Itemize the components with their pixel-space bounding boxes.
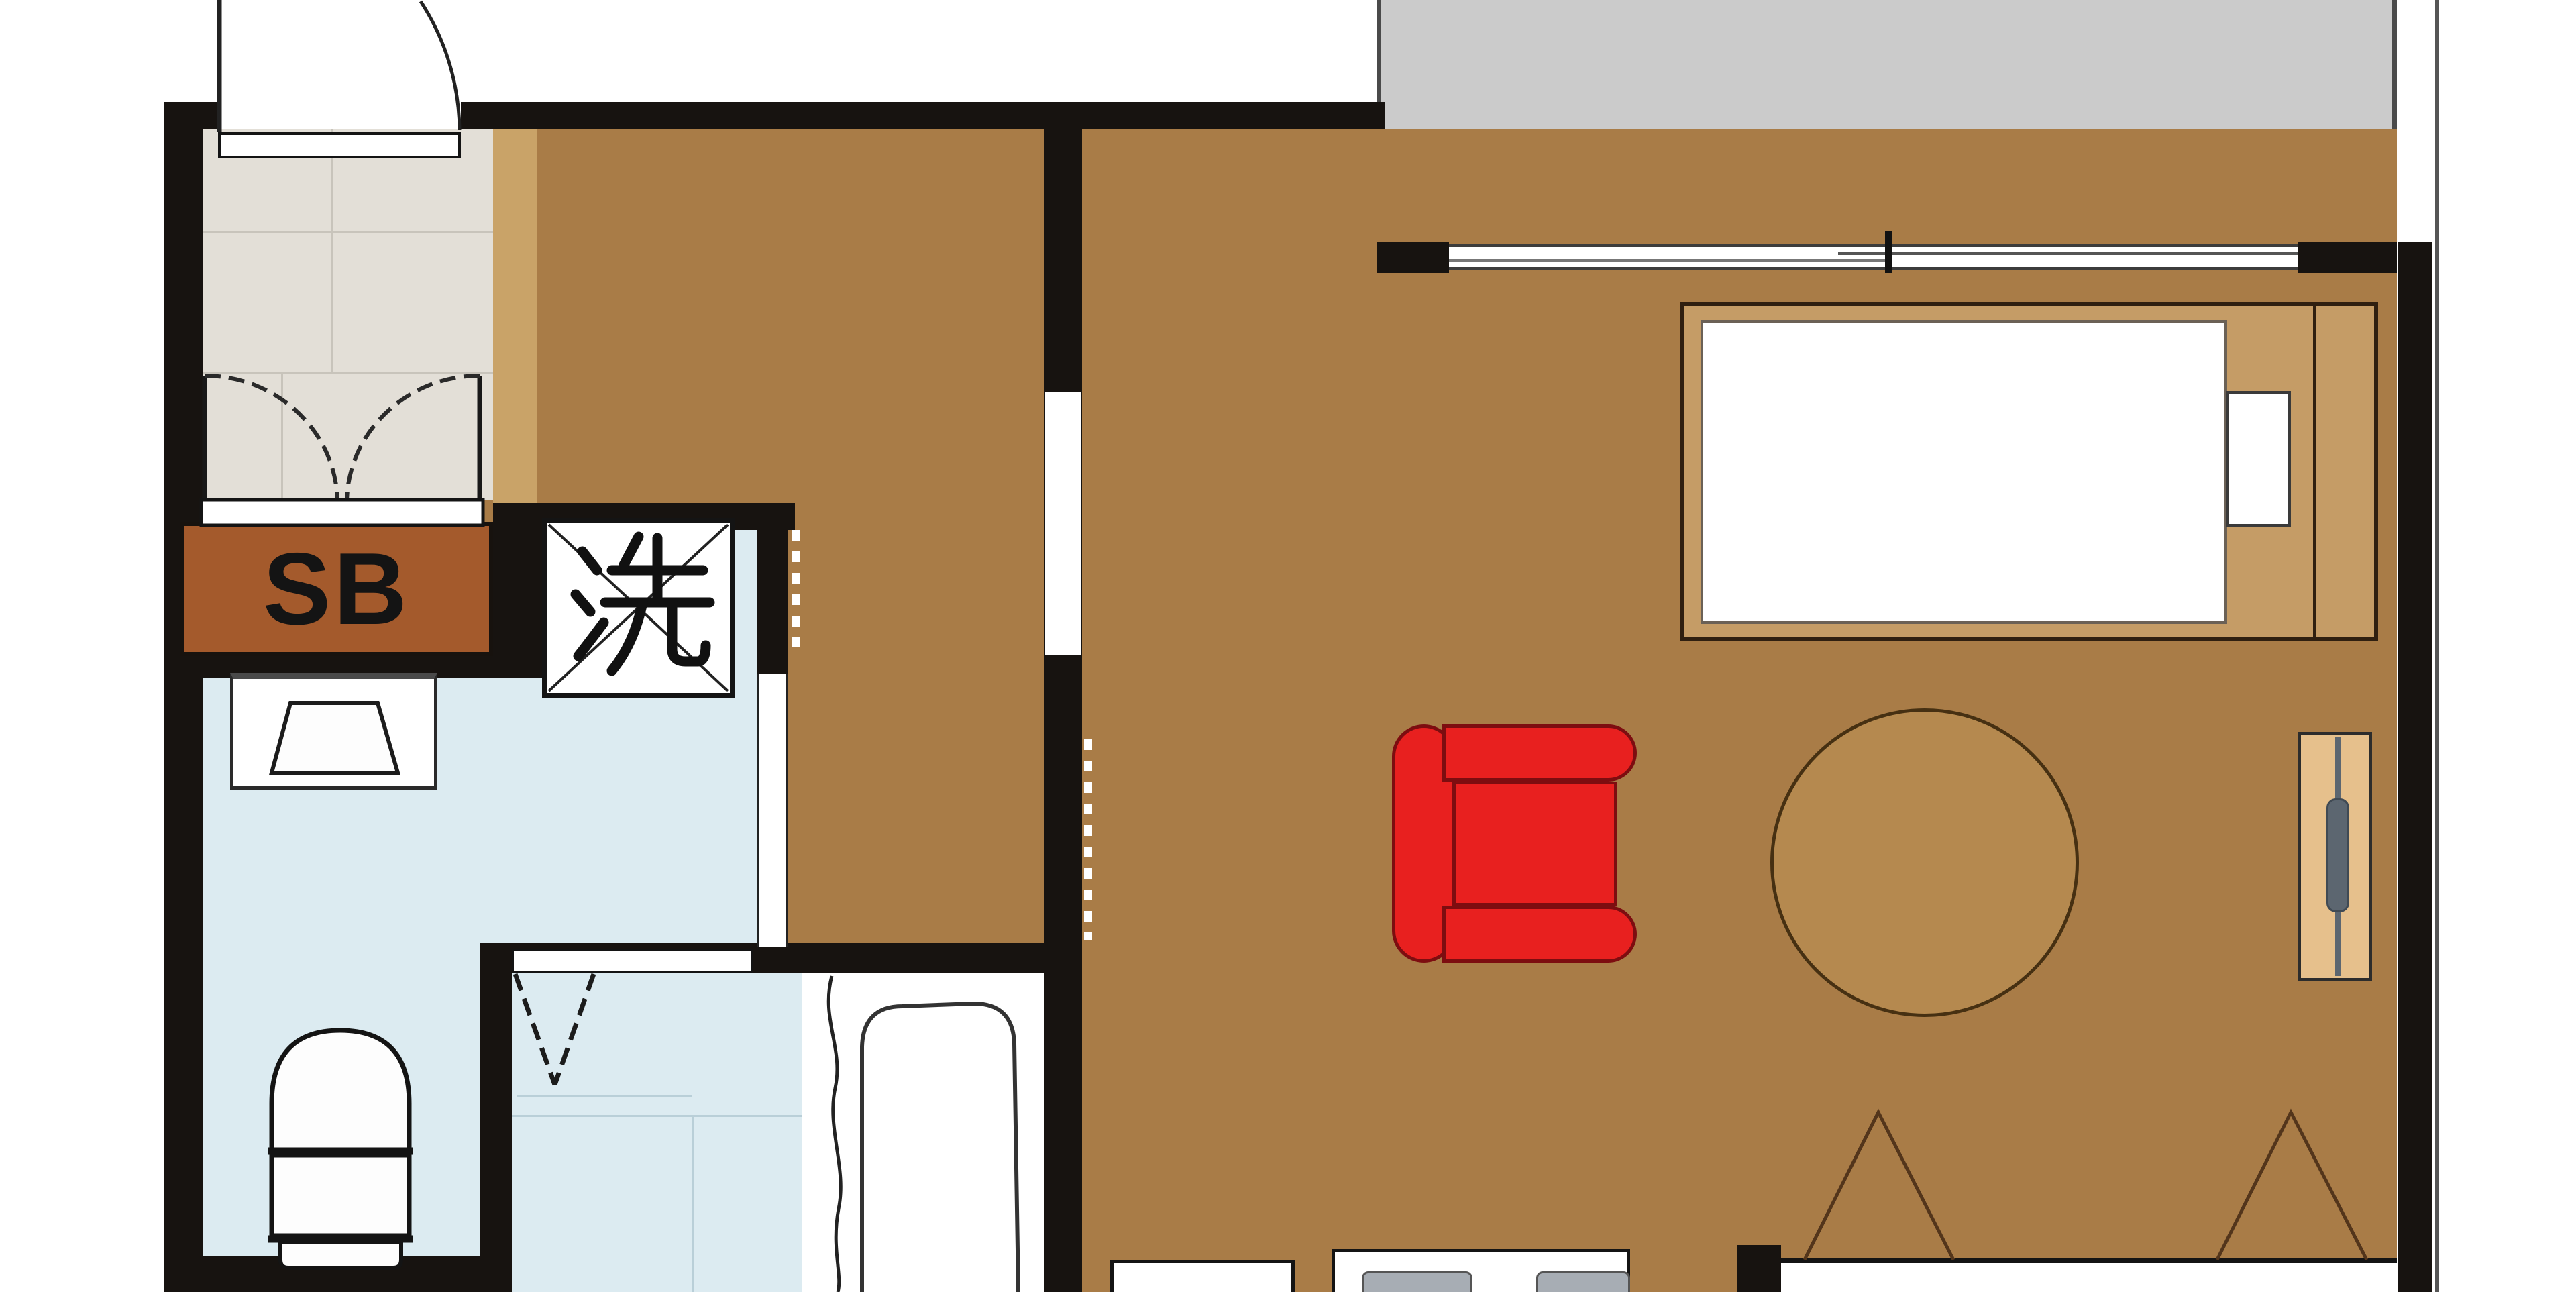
double-door-swing-icon <box>205 376 480 503</box>
floor-plan: SB 洗 <box>0 0 2576 1292</box>
closet-threshold <box>201 500 483 525</box>
bathtub-icon <box>828 976 1018 1292</box>
folding-door-icon <box>515 974 594 1085</box>
sink-icon <box>272 703 398 773</box>
closet-triangle-icon <box>1805 1112 2367 1260</box>
plan-linework <box>0 0 2576 1292</box>
entry-door-swing-icon <box>219 0 460 132</box>
toilet-icon <box>268 1030 413 1268</box>
laundry-kanji-icon <box>576 537 710 671</box>
